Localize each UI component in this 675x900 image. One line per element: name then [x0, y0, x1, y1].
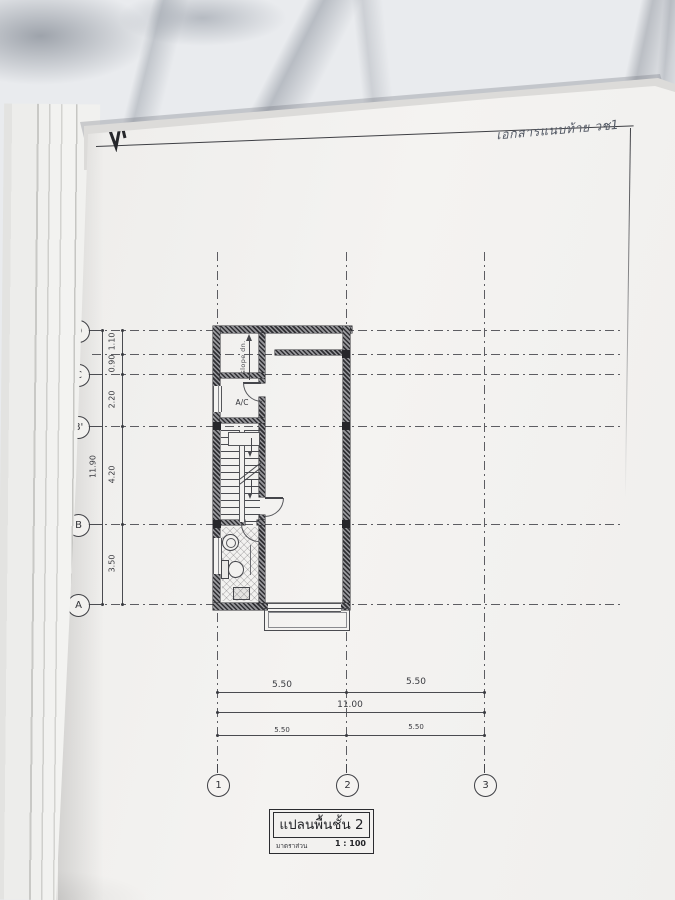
dim-label-total-11-90: 11.90: [88, 447, 99, 487]
handwritten-note: เอกสารแนบท้าย วช1: [495, 113, 644, 146]
dim-label-lower-left: 5.50: [252, 725, 312, 736]
stair-direction-line: [251, 438, 252, 452]
dim-label-lower-right: 5.50: [386, 722, 446, 733]
grid-line-row-mid: [92, 354, 622, 355]
column: [342, 422, 350, 430]
dimension-dot: [483, 691, 486, 694]
title-block: แปลนพื้นชั้น 2 มาตราส่วน 1 : 100: [269, 809, 374, 854]
dim-label-2-20: 2.20: [107, 380, 118, 420]
dim-label-5-50-right: 5.50: [386, 677, 446, 688]
grid-line-row-C: [92, 374, 622, 375]
grid-bubble-A: A: [67, 594, 90, 617]
wall-room-top: [275, 350, 343, 355]
bubble-connector: [88, 604, 102, 605]
dimension-line-segments-vertical: [122, 330, 123, 605]
grid-line-col-3: [484, 252, 485, 766]
grid-line-row-A: [92, 604, 622, 605]
grid-line-row-D: [92, 330, 622, 331]
dimension-line-total-vertical: [102, 330, 103, 605]
grid-bubble-1: 1: [207, 774, 230, 797]
dimension-dot: [345, 691, 348, 694]
balcony: [264, 608, 350, 631]
slope-label: slope dn.: [238, 336, 248, 378]
bubble-connector: [88, 426, 102, 427]
scale-value: 1 : 100: [318, 839, 366, 848]
dimension-dot: [121, 373, 124, 376]
bubble-connector: [88, 330, 102, 331]
shower-partition: [250, 545, 251, 575]
scale-label: มาตราส่วน: [276, 841, 307, 851]
dimension-dot: [121, 523, 124, 526]
drawing-frame-right-border: [625, 128, 631, 498]
paper-sheet: เอกสารแนบท้าย วช1: [0, 0, 675, 900]
bubble-connector: [88, 374, 102, 375]
bubble-connector: [217, 764, 218, 773]
dimension-dot: [216, 691, 219, 694]
dim-label-3-50: 3.50: [107, 544, 118, 584]
dimension-line-total: [217, 712, 485, 713]
shaft-vent: [233, 587, 250, 600]
column: [342, 520, 350, 528]
column: [213, 520, 221, 528]
wash-basin-bowl: [226, 538, 236, 548]
dimension-line-upper: [217, 692, 485, 693]
stair-direction-arrow: [248, 494, 252, 499]
wall-interior-vertical: [259, 515, 265, 603]
dimension-dot: [121, 329, 124, 332]
grid-bubble-3: 3: [474, 774, 497, 797]
dimension-dot: [121, 603, 124, 606]
dim-label-4-20: 4.20: [107, 455, 118, 495]
dimension-dot: [345, 734, 348, 737]
dimension-dot: [483, 734, 486, 737]
dimension-dot: [483, 711, 486, 714]
dimension-dot: [121, 425, 124, 428]
wall-top: [213, 326, 352, 333]
dimension-dot: [216, 711, 219, 714]
column: [213, 422, 221, 430]
door-swing-hall: [265, 498, 284, 517]
room-label-ac: A/C: [229, 398, 255, 407]
slope-arrow-line: [249, 340, 250, 380]
bubble-connector: [88, 524, 102, 525]
dim-label-0-90: 0.90: [107, 344, 118, 384]
grid-line-row-B: [92, 524, 622, 525]
dim-label-total-11-00: 11.00: [320, 700, 380, 711]
grid-line-row-Bp: [92, 426, 622, 427]
dimension-dot: [216, 734, 219, 737]
stair-direction-line: [251, 480, 252, 494]
wall-stair-top: [220, 418, 265, 423]
dimension-dot: [121, 353, 124, 356]
stair-landing: [228, 432, 260, 446]
window-left-ac: [213, 386, 222, 412]
drawing-title: แปลนพื้นชั้น 2: [273, 812, 370, 838]
stair-direction-arrow: [248, 452, 252, 457]
dim-label-5-50-left: 5.50: [252, 680, 312, 691]
photo-of-floor-plan: เอกสารแนบท้าย วช1: [0, 0, 675, 900]
wall-right: [343, 326, 350, 610]
bubble-connector: [346, 764, 347, 773]
bubble-connector: [484, 764, 485, 773]
column: [342, 350, 350, 358]
grid-bubble-2: 2: [336, 774, 359, 797]
